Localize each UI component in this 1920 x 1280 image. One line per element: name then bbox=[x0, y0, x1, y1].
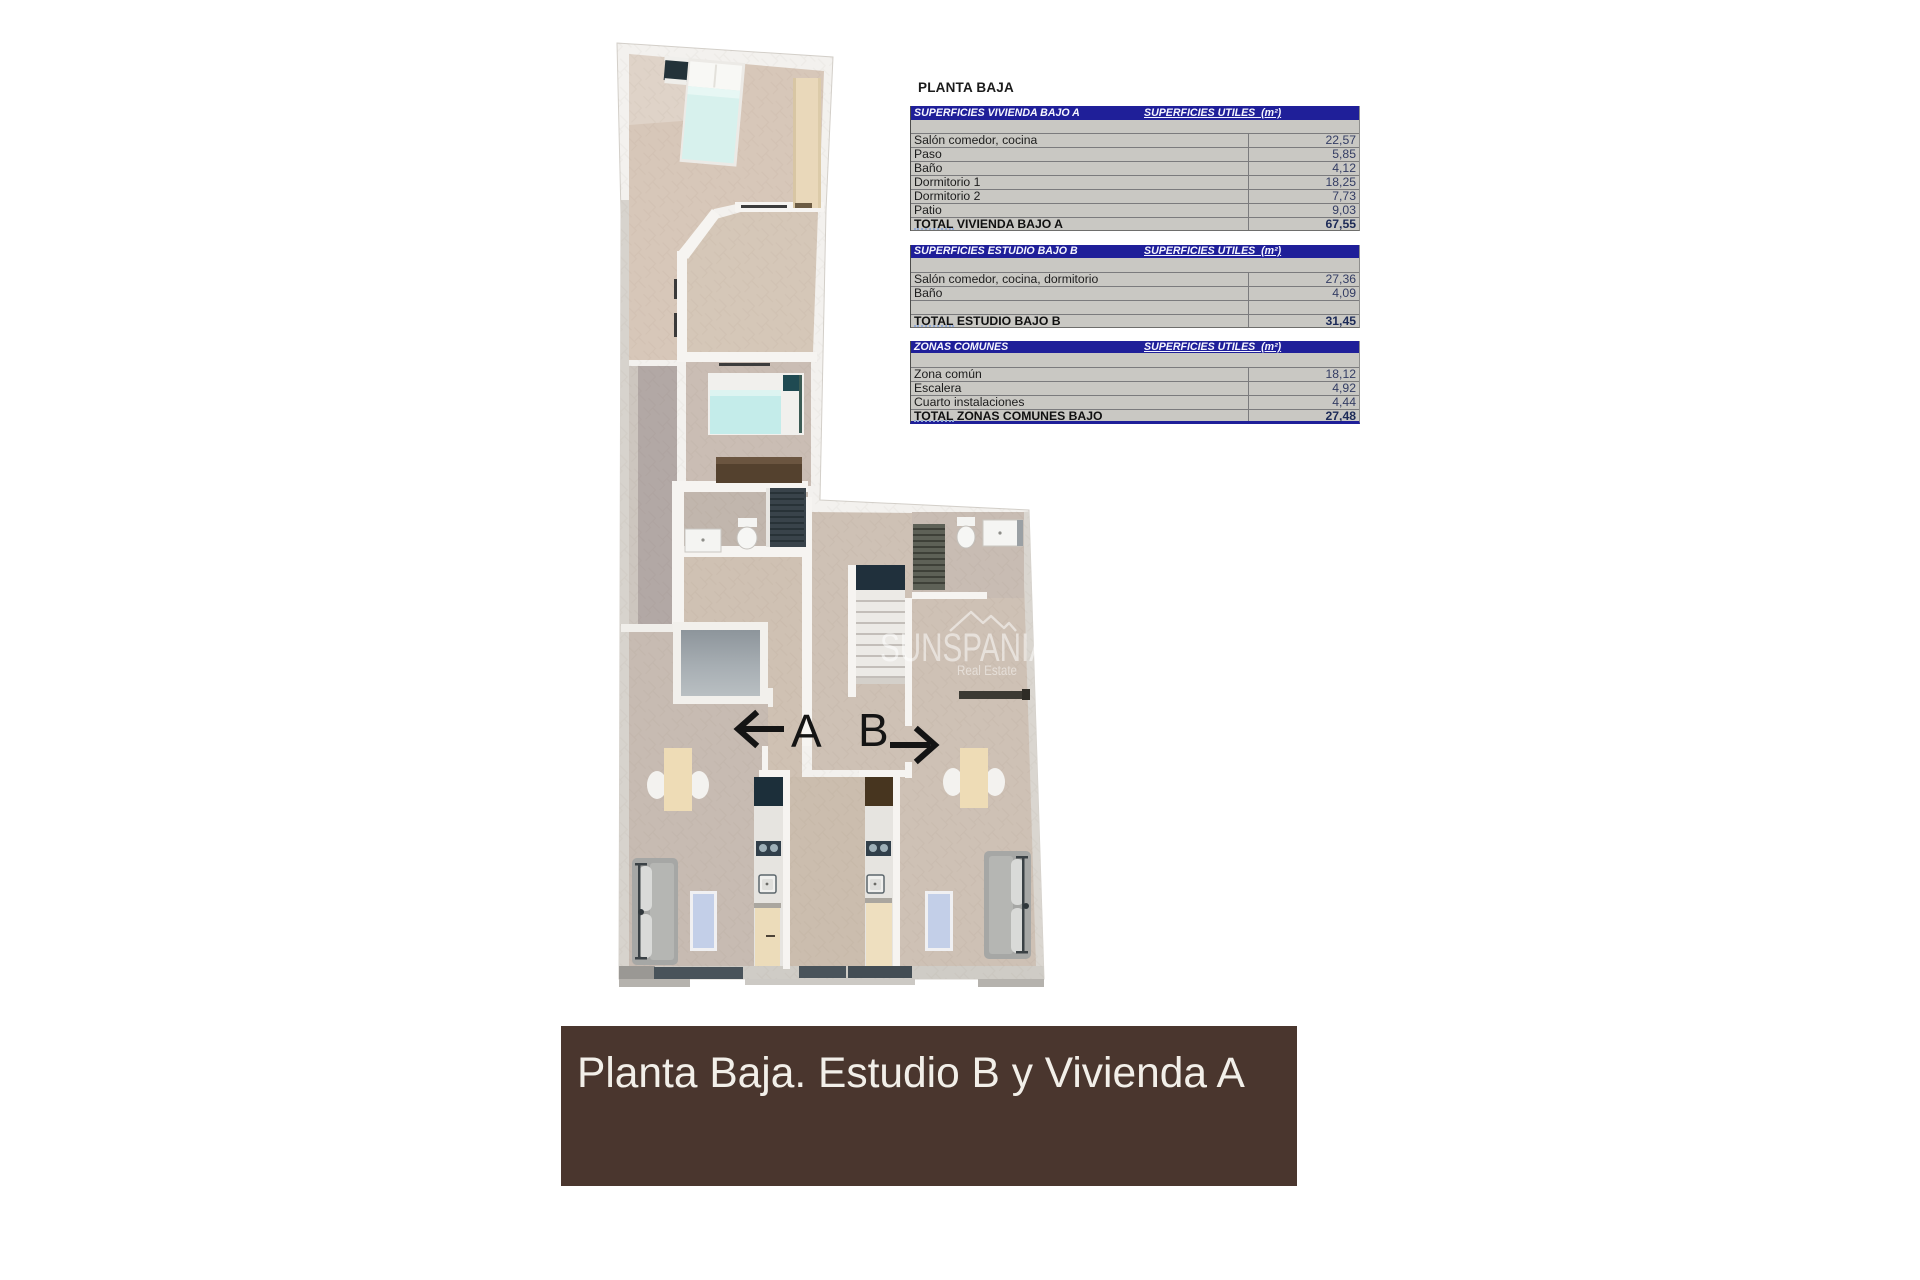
svg-text:Real Estate: Real Estate bbox=[957, 663, 1017, 678]
svg-text:A: A bbox=[791, 705, 822, 757]
svg-text:B: B bbox=[858, 704, 889, 756]
